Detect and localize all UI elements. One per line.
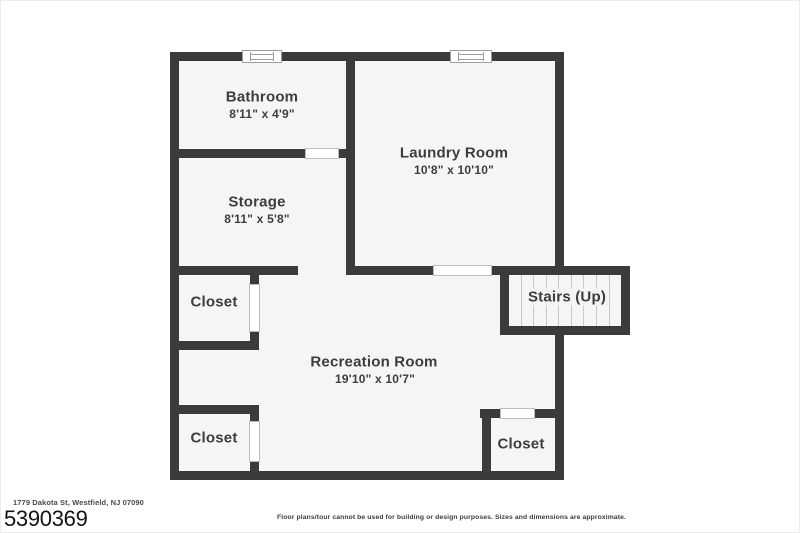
door-opening-closet-upper-left <box>249 284 260 332</box>
floor-plan-diagram: Bathroom 8'11" x 4'9" Laundry Room 10'8"… <box>0 0 800 533</box>
room-dims-laundry: 10'8" x 10'10" <box>414 163 494 177</box>
door-opening-closet-lower-left <box>249 421 260 462</box>
wall-laundry-right <box>555 52 564 275</box>
listing-id: 5390369 <box>4 506 88 532</box>
wall-closet-lower-left-top <box>170 405 259 414</box>
wall-bathroom-bottom <box>170 149 305 158</box>
wall-laundry-bottom-left <box>346 266 433 275</box>
room-dims-bathroom: 8'11" x 4'9" <box>229 107 295 121</box>
floor-upper-rooms <box>170 52 564 275</box>
door-opening-laundry <box>433 265 492 276</box>
room-name-closet-lower-right: Closet <box>497 436 544 453</box>
wall-outer-top <box>170 52 564 61</box>
room-dims-recreation: 19'10" x 10'7" <box>335 372 415 386</box>
floor-plan-page: Bathroom 8'11" x 4'9" Laundry Room 10'8"… <box>0 0 800 533</box>
wall-bathroom-laundry <box>346 52 355 275</box>
door-opening-bathroom <box>305 148 339 159</box>
wall-outer-bottom <box>170 471 564 480</box>
room-name-storage: Storage <box>228 194 285 211</box>
wall-stairs-bottom <box>500 326 630 335</box>
disclaimer-text: Floor plans/tour cannot be used for buil… <box>277 514 626 521</box>
wall-stairs-top <box>492 266 630 275</box>
room-name-recreation: Recreation Room <box>310 354 437 371</box>
wall-closet-lower-right-left <box>482 409 491 480</box>
wall-bathroom-door-jamb <box>339 149 346 158</box>
room-name-bathroom: Bathroom <box>226 89 298 106</box>
room-name-closet-upper-left: Closet <box>190 294 237 311</box>
window-symbol-laundry <box>450 50 492 63</box>
wall-storage-bottom <box>170 266 298 275</box>
room-name-stairs: Stairs (Up) <box>525 289 609 306</box>
wall-recreation-right <box>555 326 564 480</box>
room-dims-storage: 8'11" x 5'8" <box>224 212 290 226</box>
wall-closet-upper-left-bottom <box>170 341 259 350</box>
room-name-laundry: Laundry Room <box>400 145 508 162</box>
door-opening-closet-lower-right <box>500 408 535 419</box>
room-name-closet-lower-left: Closet <box>190 430 237 447</box>
window-symbol-bathroom <box>242 50 282 63</box>
